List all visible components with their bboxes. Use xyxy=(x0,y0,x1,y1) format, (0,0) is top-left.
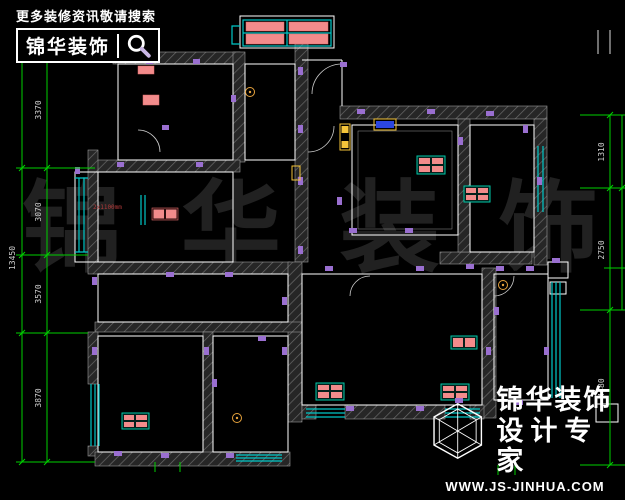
dim-right-1: 1310 xyxy=(597,142,606,161)
radiator-small xyxy=(143,95,159,105)
room-kitchen-inner xyxy=(358,131,452,229)
dim-left-3: 3570 xyxy=(34,284,43,303)
light-fixture-icon xyxy=(236,417,238,419)
dim-right-2: 2750 xyxy=(597,240,606,259)
hallway-outline xyxy=(98,274,288,322)
window-sliding-interior xyxy=(141,195,145,225)
banner-brand: 锦华装饰 xyxy=(26,32,110,59)
light-fixture-icon xyxy=(249,91,251,93)
wall-segment xyxy=(95,322,302,332)
wall-segment xyxy=(88,332,98,384)
banner-tagline: 更多装修资讯敬请搜索 xyxy=(16,6,160,25)
search-banner: 更多装修资讯敬请搜索 锦华装饰 xyxy=(16,6,160,63)
magnifier-icon xyxy=(126,33,152,59)
door-arc xyxy=(494,276,514,296)
dim-left-overall: 13450 xyxy=(8,246,17,270)
dimension-chain-left xyxy=(16,49,95,465)
radiator-size-note: 2x1100mm xyxy=(93,204,122,211)
wall-segment xyxy=(295,44,308,262)
radiator-1x2 xyxy=(451,336,477,349)
door-arc xyxy=(308,126,334,152)
dim-left-1: 3370 xyxy=(34,100,43,119)
door-jamb xyxy=(340,124,350,150)
room-study xyxy=(245,64,295,160)
door-arc xyxy=(350,276,370,296)
wall-segment xyxy=(440,252,532,264)
dim-left-2: 3070 xyxy=(34,202,43,221)
light-fixture-icon xyxy=(502,284,504,286)
door-arc xyxy=(138,130,160,152)
brand-footer: 锦华装饰 设计专家 WWW.JS-JINHUA.COM xyxy=(427,385,623,494)
radiator-2x2 xyxy=(316,383,344,400)
corner-ticks xyxy=(598,30,610,54)
window-bracket xyxy=(232,26,240,44)
floorplan-canvas: 锦 华 装 饰 xyxy=(0,0,625,500)
wall-segment xyxy=(233,52,245,162)
footer-subtitle: 设计专家 xyxy=(496,416,623,476)
door-arc xyxy=(312,64,342,94)
room-bedroom-top-left xyxy=(118,64,233,160)
wall-segment xyxy=(340,106,547,119)
room-bottom-left-2 xyxy=(213,336,288,452)
radiator-2x2 xyxy=(464,186,490,202)
wireframe-cube-icon xyxy=(427,399,488,463)
banner-divider xyxy=(117,34,119,58)
wall-segment xyxy=(95,160,240,172)
wall-segment xyxy=(288,262,302,422)
appliance-box xyxy=(374,119,396,130)
footer-brand: 锦华装饰 xyxy=(496,385,623,415)
radiator-2x2 xyxy=(417,156,445,174)
wall-segment xyxy=(88,262,290,274)
dim-left-4: 3870 xyxy=(34,388,43,407)
window-left-upper xyxy=(75,178,88,252)
wall-segment xyxy=(534,119,547,265)
radiator-2x2 xyxy=(122,413,149,429)
furniture-box xyxy=(548,262,568,278)
room-kitchen xyxy=(352,125,458,235)
search-box: 锦华装饰 xyxy=(16,28,160,63)
room-right-lower xyxy=(494,274,548,400)
footer-website: WWW.JS-JINHUA.COM xyxy=(427,479,623,494)
room-bottom-left-1 xyxy=(98,336,203,452)
window-right-bay xyxy=(552,282,560,398)
radiator-1x2 xyxy=(152,208,178,220)
wall-segment xyxy=(95,452,290,466)
radiator-small xyxy=(138,66,154,74)
